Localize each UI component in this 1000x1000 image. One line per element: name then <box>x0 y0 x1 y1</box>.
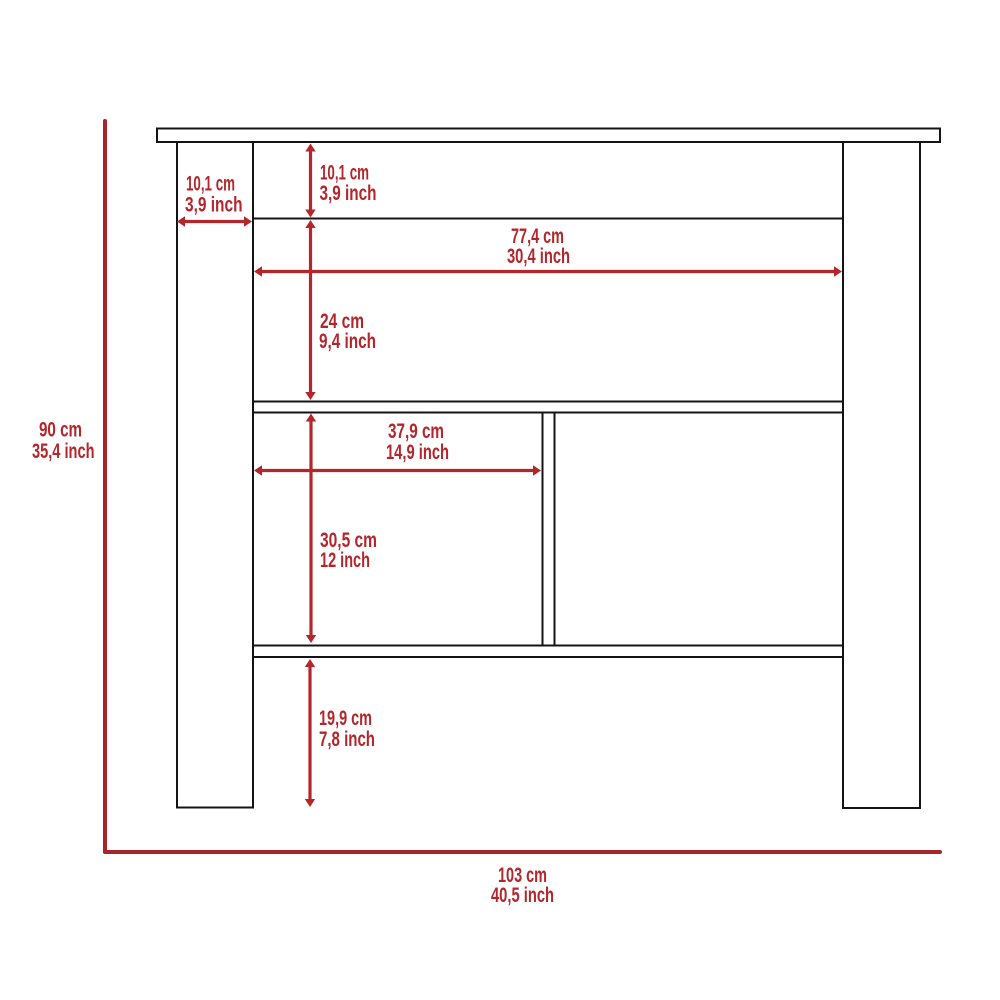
svg-text:9,4 inch: 9,4 inch <box>319 330 376 353</box>
svg-text:7,8 inch: 7,8 inch <box>319 728 375 751</box>
svg-text:3,9 inch: 3,9 inch <box>185 194 243 217</box>
svg-text:37,9 cm: 37,9 cm <box>388 420 444 443</box>
svg-text:30,4 inch: 30,4 inch <box>507 245 570 268</box>
svg-text:19,9 cm: 19,9 cm <box>319 707 372 730</box>
svg-text:10,1 cm: 10,1 cm <box>186 173 235 196</box>
svg-text:90 cm: 90 cm <box>39 419 82 442</box>
svg-text:35,4 inch: 35,4 inch <box>32 440 95 463</box>
svg-text:12 inch: 12 inch <box>320 549 370 572</box>
svg-text:40,5 inch: 40,5 inch <box>491 884 554 907</box>
svg-text:3,9 inch: 3,9 inch <box>320 182 377 205</box>
svg-text:14,9 inch: 14,9 inch <box>386 441 449 464</box>
